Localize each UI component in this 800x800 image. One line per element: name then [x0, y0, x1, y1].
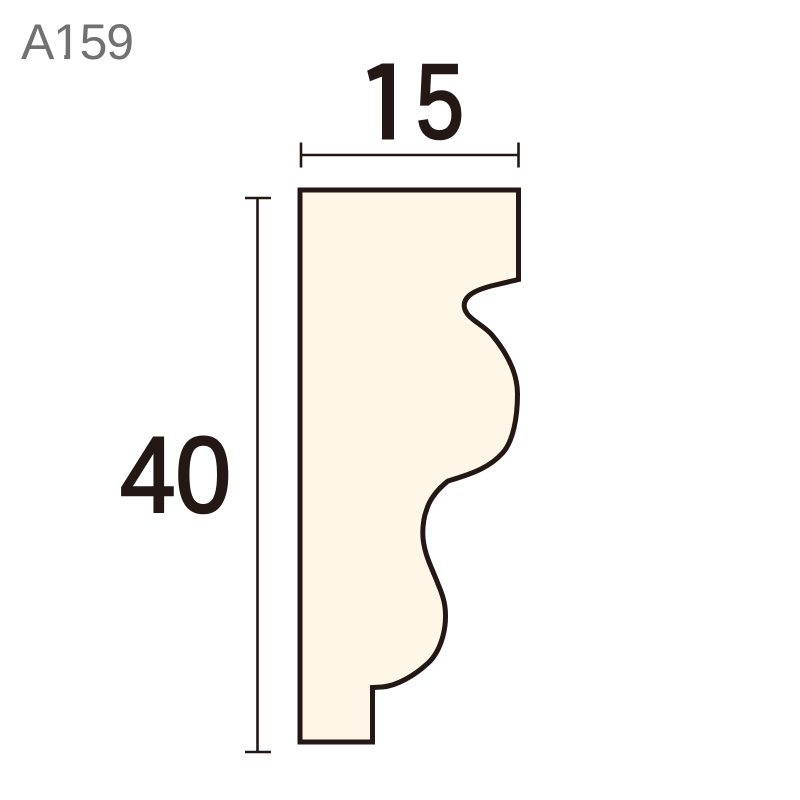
svg-text:A159: A159: [21, 14, 134, 70]
svg-text:5: 5: [416, 43, 464, 161]
svg-text:40: 40: [120, 414, 231, 535]
